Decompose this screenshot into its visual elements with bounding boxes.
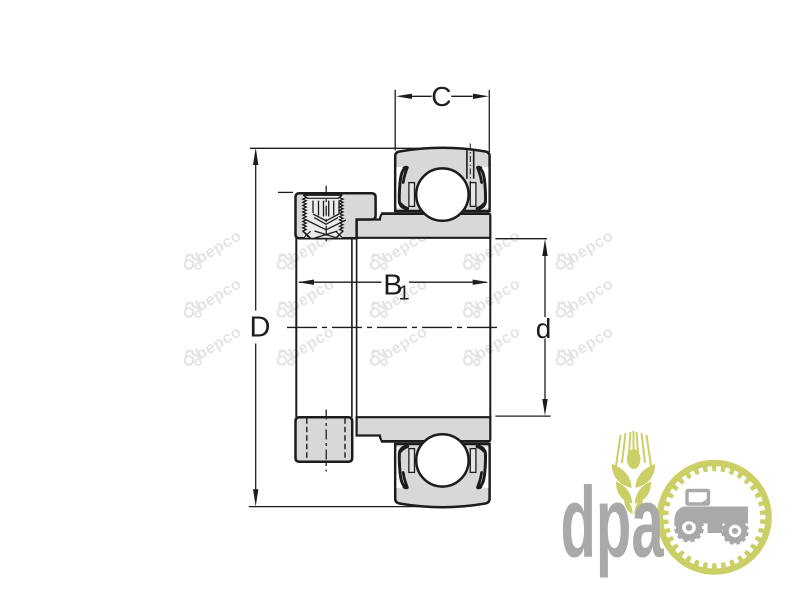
svg-text:D: D	[250, 312, 271, 344]
svg-text:1: 1	[399, 283, 410, 305]
svg-text:d: d	[536, 313, 552, 344]
svg-text:dpa: dpa	[561, 467, 664, 578]
svg-text:C: C	[431, 81, 451, 112]
